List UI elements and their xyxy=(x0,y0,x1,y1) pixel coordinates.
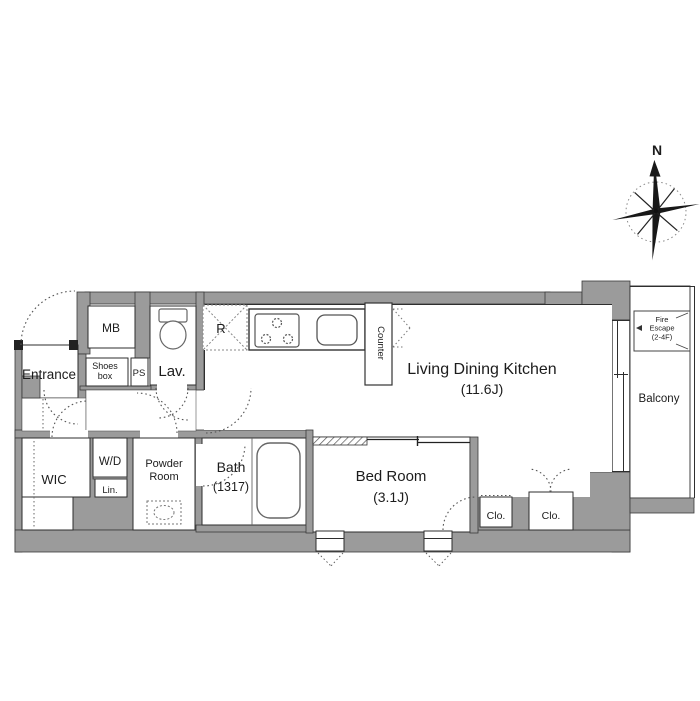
door-gap xyxy=(50,430,88,438)
wall-segment xyxy=(306,430,313,533)
wic-label: WIC xyxy=(41,472,66,487)
washer-dryer-label: W/D xyxy=(99,456,121,468)
toilet-icon xyxy=(159,309,187,349)
shoes-box-label-1: Shoes xyxy=(92,361,118,371)
ldk-size-label: (11.6J) xyxy=(461,381,504,397)
pipe-space-label: PS xyxy=(133,368,146,379)
closet2-label: Clo. xyxy=(542,510,561,522)
fire-escape-hatch: Fire Escape (2-4F) xyxy=(634,311,690,351)
partition-hatch xyxy=(313,437,367,445)
wall-segment xyxy=(470,437,478,533)
wall-segment xyxy=(93,477,127,479)
shoes-box-label-2: box xyxy=(98,371,113,381)
entrance-door-post xyxy=(69,340,78,350)
wall-segment xyxy=(135,292,150,358)
closet1-label: Clo. xyxy=(487,510,506,522)
balcony-bottom-wall xyxy=(630,498,694,513)
floor-plan: Fire Escape (2-4F) Entrance MB Shoes box… xyxy=(0,0,700,701)
room-wic-upper xyxy=(22,438,90,497)
bedroom-window xyxy=(316,531,344,551)
linen-label: Lin. xyxy=(102,485,117,496)
door-gap xyxy=(157,383,187,391)
wall-segment xyxy=(80,386,151,390)
stove-icon xyxy=(255,314,299,347)
bedroom-size-label: (3.1J) xyxy=(373,489,409,505)
bedroom-window xyxy=(424,531,452,551)
corridor xyxy=(86,390,196,431)
wall-segment xyxy=(85,292,550,304)
meter-box-label: MB xyxy=(102,321,120,335)
fire-escape-label-2: Escape xyxy=(649,324,674,333)
bath-size-label: (1317) xyxy=(213,480,249,494)
bedroom-label: Bed Room xyxy=(356,468,427,485)
window-strip xyxy=(613,320,629,472)
compass-rose-icon xyxy=(608,157,700,263)
powder-room-label-1: Powder xyxy=(145,458,183,470)
compass-north-label: N xyxy=(652,142,662,158)
door-gap xyxy=(196,444,204,486)
room-wic-lower xyxy=(22,497,73,530)
ldk-label: Living Dining Kitchen xyxy=(407,361,556,378)
wall-segment xyxy=(78,354,86,400)
door-gap xyxy=(140,430,178,438)
sink-icon xyxy=(317,315,357,345)
room-powder xyxy=(133,438,195,530)
door-swing-arc xyxy=(21,291,75,345)
wall-segment xyxy=(196,525,313,532)
balcony-label: Balcony xyxy=(639,393,680,405)
counter-label: Counter xyxy=(375,326,386,360)
refrigerator-label: R xyxy=(216,321,225,336)
floor-plan-canvas: Fire Escape (2-4F) Entrance MB Shoes box… xyxy=(0,0,700,701)
powder-room-label-2: Room xyxy=(149,471,178,483)
compass: N xyxy=(608,142,700,263)
lavatory-label: Lav. xyxy=(158,363,185,380)
bath-label: Bath xyxy=(217,459,246,475)
room-ldk-arm xyxy=(478,438,612,472)
entrance-label: Entrance xyxy=(22,367,76,382)
fire-escape-label-3: (2-4F) xyxy=(652,333,673,342)
entrance-door-post xyxy=(14,340,23,350)
